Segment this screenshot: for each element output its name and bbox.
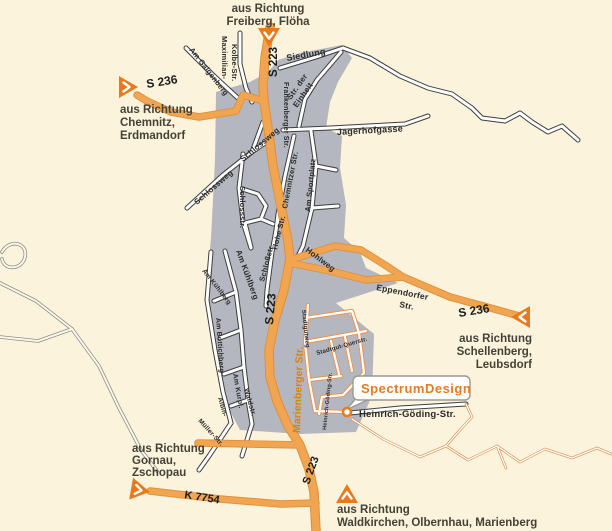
direction-north-line2: Freiberg, Flöha [226,16,310,28]
direction-southwest-line2: Gornau, [132,455,176,467]
route-map: Siedlung Str. der Einheit Jagerhofgasse … [0,0,612,531]
direction-east-line2: Schellenberg, [457,346,532,358]
street-label-kolbe-str: Kolbe-Str. [230,44,239,81]
direction-north-line1: aus Richtung [232,3,305,15]
direction-southwest-line1: aus Richtung [132,443,205,455]
direction-southwest-line3: Zschopau [132,467,186,479]
street-label-frankenberger: Frankenberger Str. [282,82,289,148]
poi-name: SpectrumDesign [361,381,471,396]
road-gornau [198,443,300,445]
direction-west-line2: Chemnitz, [120,117,175,129]
direction-text-north: aus Richtung Freiberg, Flöha [226,3,310,28]
direction-south-line2: Waldkirchen, Olbernhau, Marienberg [337,517,537,529]
street-label-maximilian: Maximilian- [220,36,229,79]
direction-east-line3: Leubsdorf [476,359,532,371]
direction-south-line1: aus Richtung [337,504,410,516]
direction-east-line1: aus Richtung [459,333,532,345]
road-number-s223-mid: S 223 [262,292,279,325]
road-estate [315,411,345,412]
direction-west-line1: aus Richtung [120,104,193,116]
direction-west-line3: Erdmandorf [120,130,185,142]
road-cross [312,206,338,208]
map-canvas: Siedlung Str. der Einheit Jagerhofgasse … [0,0,612,531]
road-number-s223-north: S 223 [268,47,280,77]
street-label-schlossstr: Schlossstr. [238,186,247,228]
poi-marker-icon[interactable] [343,408,351,416]
street-label-heinrich-goeding: Heinrich-Göding-Str. [359,409,456,420]
